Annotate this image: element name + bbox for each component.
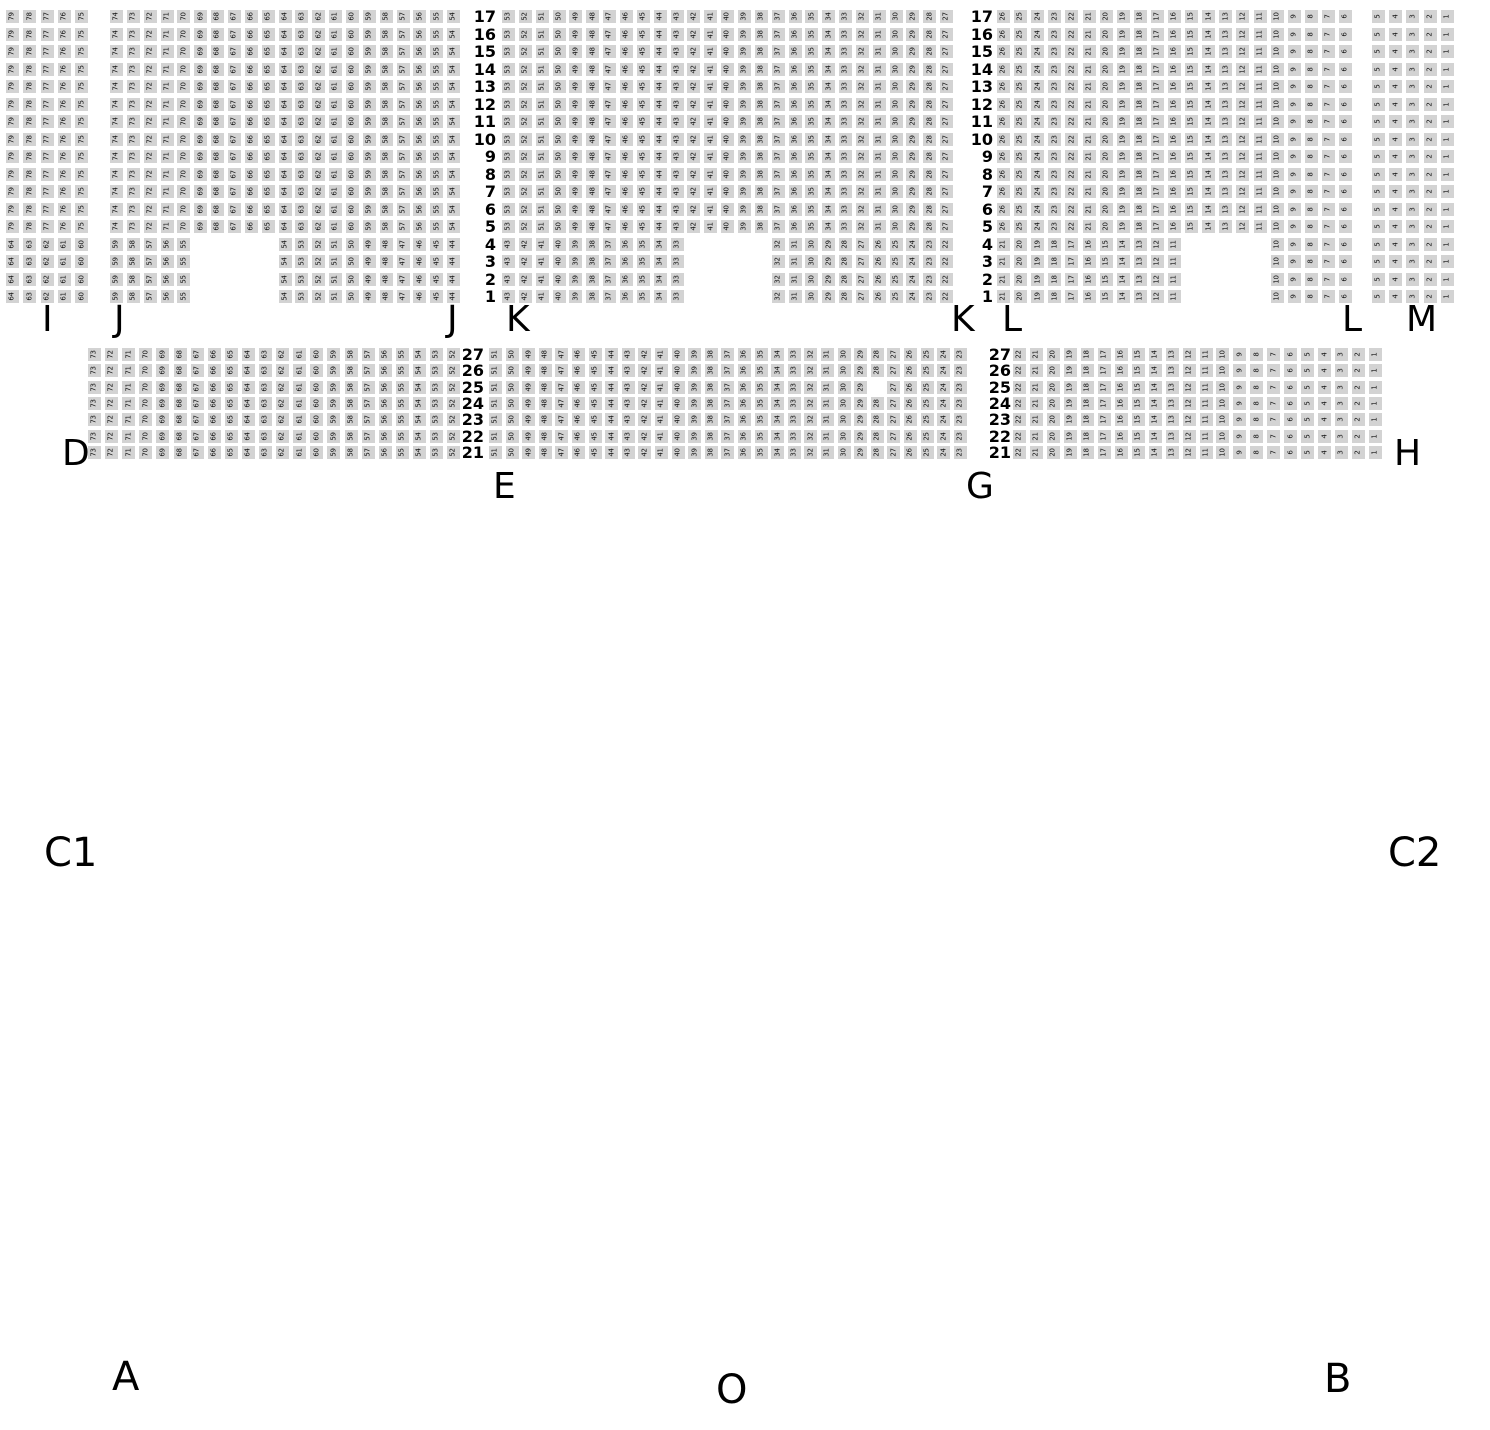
seat[interactable]: 17 (1151, 80, 1164, 93)
seat[interactable]: 1 (1441, 255, 1454, 268)
seat[interactable]: 78 (23, 133, 36, 146)
seat[interactable]: 57 (397, 220, 410, 233)
seat[interactable]: 67 (228, 168, 241, 181)
seat[interactable]: 65 (262, 133, 275, 146)
seat[interactable]: 8 (1305, 28, 1318, 41)
seat[interactable]: 65 (225, 413, 238, 426)
seat[interactable]: 31 (873, 133, 886, 146)
seat[interactable]: 22 (1065, 150, 1078, 163)
seat[interactable]: 43 (502, 255, 515, 268)
seat[interactable]: 34 (654, 273, 667, 286)
seat[interactable]: 24 (1031, 98, 1044, 111)
seat[interactable]: 58 (380, 80, 393, 93)
seat[interactable]: 32 (856, 203, 869, 216)
seat[interactable]: 29 (906, 220, 919, 233)
seat[interactable]: 38 (586, 273, 599, 286)
seat[interactable]: 33 (839, 10, 852, 23)
seat[interactable]: 75 (75, 185, 88, 198)
seat[interactable]: 22 (1065, 80, 1078, 93)
seat[interactable]: 15 (1185, 115, 1198, 128)
seat[interactable]: 50 (553, 220, 566, 233)
seat[interactable]: 44 (447, 255, 460, 268)
seat[interactable]: 56 (379, 348, 392, 361)
seat[interactable]: 72 (144, 115, 157, 128)
seat[interactable]: 17 (1151, 10, 1164, 23)
seat[interactable]: 55 (430, 45, 443, 58)
seat[interactable]: 1 (1441, 168, 1454, 181)
seat[interactable]: 46 (413, 255, 426, 268)
seat[interactable]: 56 (413, 203, 426, 216)
seat[interactable]: 49 (522, 348, 535, 361)
seat[interactable]: 26 (904, 446, 917, 459)
seat[interactable]: 60 (346, 133, 359, 146)
seat[interactable]: 45 (637, 150, 650, 163)
seat[interactable]: 30 (890, 203, 903, 216)
seat[interactable]: 25 (921, 446, 934, 459)
seat[interactable]: 24 (1031, 220, 1044, 233)
seat[interactable]: 14 (1202, 150, 1215, 163)
seat[interactable]: 11 (1168, 238, 1181, 251)
seat[interactable]: 51 (536, 133, 549, 146)
seat[interactable]: 4 (1389, 150, 1402, 163)
seat[interactable]: 53 (430, 364, 443, 377)
seat[interactable]: 2 (1352, 364, 1365, 377)
seat[interactable]: 13 (1219, 10, 1232, 23)
seat[interactable]: 30 (890, 98, 903, 111)
seat[interactable]: 62 (312, 28, 325, 41)
seat[interactable]: 42 (687, 133, 700, 146)
seat[interactable]: 27 (940, 220, 953, 233)
seat[interactable]: 51 (536, 203, 549, 216)
seat[interactable]: 58 (127, 290, 140, 303)
seat[interactable]: 79 (6, 150, 19, 163)
seat[interactable]: 1 (1441, 133, 1454, 146)
seat[interactable]: 60 (346, 150, 359, 163)
seat[interactable]: 61 (329, 10, 342, 23)
seat[interactable]: 12 (1183, 430, 1196, 443)
seat[interactable]: 24 (937, 348, 950, 361)
seat[interactable]: 70 (177, 168, 190, 181)
seat[interactable]: 21 (1030, 430, 1043, 443)
seat[interactable]: 18 (1134, 133, 1147, 146)
seat[interactable]: 62 (312, 220, 325, 233)
seat[interactable]: 17 (1098, 381, 1111, 394)
seat[interactable]: 70 (177, 185, 190, 198)
seat[interactable]: 16 (1168, 168, 1181, 181)
seat[interactable]: 4 (1318, 446, 1331, 459)
seat[interactable]: 40 (721, 115, 734, 128)
seat[interactable]: 15 (1185, 63, 1198, 76)
seat[interactable]: 13 (1134, 290, 1147, 303)
seat[interactable]: 41 (536, 255, 549, 268)
seat[interactable]: 31 (789, 290, 802, 303)
seat[interactable]: 29 (906, 63, 919, 76)
seat[interactable]: 35 (805, 203, 818, 216)
seat[interactable]: 46 (572, 381, 585, 394)
seat[interactable]: 60 (346, 168, 359, 181)
seat[interactable]: 8 (1305, 133, 1318, 146)
seat[interactable]: 23 (1048, 185, 1061, 198)
seat[interactable]: 7 (1322, 115, 1335, 128)
seat[interactable]: 4 (1389, 238, 1402, 251)
seat[interactable]: 42 (519, 273, 532, 286)
seat[interactable]: 27 (940, 150, 953, 163)
seat[interactable]: 16 (1083, 273, 1096, 286)
seat[interactable]: 65 (262, 115, 275, 128)
seat[interactable]: 69 (194, 63, 207, 76)
seat[interactable]: 1 (1369, 381, 1382, 394)
seat[interactable]: 9 (1288, 255, 1301, 268)
seat[interactable]: 10 (1216, 348, 1229, 361)
seat[interactable]: 11 (1254, 115, 1267, 128)
seat[interactable]: 33 (839, 45, 852, 58)
seat[interactable]: 22 (1065, 203, 1078, 216)
seat[interactable]: 36 (738, 446, 751, 459)
seat[interactable]: 6 (1284, 430, 1297, 443)
seat[interactable]: 67 (228, 63, 241, 76)
seat[interactable]: 29 (906, 45, 919, 58)
seat[interactable]: 17 (1151, 168, 1164, 181)
seat[interactable]: 60 (75, 238, 88, 251)
seat[interactable]: 7 (1267, 430, 1280, 443)
seat[interactable]: 50 (346, 255, 359, 268)
seat[interactable]: 7 (1322, 203, 1335, 216)
seat[interactable]: 70 (177, 63, 190, 76)
seat[interactable]: 3 (1406, 80, 1419, 93)
seat[interactable]: 39 (569, 238, 582, 251)
seat[interactable]: 11 (1254, 203, 1267, 216)
seat[interactable]: 42 (687, 80, 700, 93)
seat[interactable]: 54 (413, 430, 426, 443)
seat[interactable]: 2 (1424, 98, 1437, 111)
seat[interactable]: 71 (122, 446, 135, 459)
seat[interactable]: 37 (772, 203, 785, 216)
seat[interactable]: 62 (312, 115, 325, 128)
seat[interactable]: 12 (1183, 446, 1196, 459)
seat[interactable]: 44 (605, 413, 618, 426)
seat[interactable]: 47 (555, 381, 568, 394)
seat[interactable]: 54 (447, 168, 460, 181)
seat[interactable]: 9 (1288, 290, 1301, 303)
seat[interactable]: 18 (1048, 255, 1061, 268)
seat[interactable]: 28 (923, 63, 936, 76)
seat[interactable]: 21 (1083, 220, 1096, 233)
seat[interactable]: 43 (671, 28, 684, 41)
seat[interactable]: 69 (194, 28, 207, 41)
seat[interactable]: 15 (1185, 28, 1198, 41)
seat[interactable]: 19 (1117, 115, 1130, 128)
seat[interactable]: 55 (430, 133, 443, 146)
seat[interactable]: 68 (174, 397, 187, 410)
seat[interactable]: 27 (887, 348, 900, 361)
seat[interactable]: 6 (1339, 203, 1352, 216)
seat[interactable]: 22 (940, 255, 953, 268)
seat[interactable]: 34 (771, 348, 784, 361)
seat[interactable]: 72 (144, 150, 157, 163)
seat[interactable]: 71 (122, 430, 135, 443)
seat[interactable]: 62 (41, 238, 54, 251)
seat[interactable]: 60 (346, 10, 359, 23)
seat[interactable]: 30 (890, 10, 903, 23)
seat[interactable]: 54 (447, 28, 460, 41)
seat[interactable]: 35 (805, 98, 818, 111)
seat[interactable]: 50 (506, 381, 519, 394)
seat[interactable]: 4 (1318, 397, 1331, 410)
seat[interactable]: 29 (906, 98, 919, 111)
seat[interactable]: 59 (327, 446, 340, 459)
seat[interactable]: 63 (23, 273, 36, 286)
seat[interactable]: 70 (177, 115, 190, 128)
seat[interactable]: 6 (1284, 397, 1297, 410)
seat[interactable]: 22 (1013, 397, 1026, 410)
seat[interactable]: 1 (1369, 413, 1382, 426)
seat[interactable]: 75 (75, 133, 88, 146)
seat[interactable]: 57 (362, 381, 375, 394)
seat[interactable]: 69 (156, 413, 169, 426)
seat[interactable]: 20 (1100, 220, 1113, 233)
seat[interactable]: 55 (177, 238, 190, 251)
seat[interactable]: 46 (620, 185, 633, 198)
seat[interactable]: 8 (1305, 273, 1318, 286)
seat[interactable]: 72 (144, 220, 157, 233)
seat[interactable]: 54 (447, 150, 460, 163)
seat[interactable]: 70 (177, 80, 190, 93)
seat[interactable]: 33 (839, 98, 852, 111)
seat[interactable]: 56 (413, 220, 426, 233)
seat[interactable]: 45 (637, 115, 650, 128)
seat[interactable]: 6 (1339, 220, 1352, 233)
seat[interactable]: 20 (1047, 364, 1060, 377)
seat[interactable]: 73 (88, 364, 101, 377)
seat[interactable]: 65 (262, 220, 275, 233)
seat[interactable]: 4 (1389, 10, 1402, 23)
seat[interactable]: 70 (177, 28, 190, 41)
seat[interactable]: 69 (156, 364, 169, 377)
seat[interactable]: 15 (1132, 446, 1145, 459)
seat[interactable]: 40 (721, 98, 734, 111)
seat[interactable]: 66 (245, 28, 258, 41)
seat[interactable]: 50 (553, 133, 566, 146)
seat[interactable]: 67 (191, 381, 204, 394)
seat[interactable]: 44 (654, 150, 667, 163)
seat[interactable]: 49 (569, 133, 582, 146)
seat[interactable]: 67 (191, 413, 204, 426)
seat[interactable]: 20 (1047, 446, 1060, 459)
seat[interactable]: 7 (1322, 238, 1335, 251)
seat[interactable]: 63 (259, 446, 272, 459)
seat[interactable]: 42 (687, 220, 700, 233)
seat[interactable]: 29 (822, 238, 835, 251)
seat[interactable]: 73 (127, 98, 140, 111)
seat[interactable]: 19 (1117, 133, 1130, 146)
seat[interactable]: 42 (687, 185, 700, 198)
seat[interactable]: 48 (586, 168, 599, 181)
seat[interactable]: 15 (1185, 98, 1198, 111)
seat[interactable]: 3 (1335, 364, 1348, 377)
seat[interactable]: 26 (904, 397, 917, 410)
seat[interactable]: 40 (721, 133, 734, 146)
seat[interactable]: 56 (413, 98, 426, 111)
seat[interactable]: 74 (110, 28, 123, 41)
seat[interactable]: 17 (1065, 255, 1078, 268)
seat[interactable]: 31 (873, 45, 886, 58)
seat[interactable]: 36 (789, 203, 802, 216)
seat[interactable]: 73 (88, 381, 101, 394)
seat[interactable]: 31 (789, 273, 802, 286)
seat[interactable]: 1 (1441, 273, 1454, 286)
seat[interactable]: 65 (262, 63, 275, 76)
seat[interactable]: 53 (502, 28, 515, 41)
seat[interactable]: 15 (1100, 290, 1113, 303)
seat[interactable]: 13 (1134, 255, 1147, 268)
seat[interactable]: 28 (839, 238, 852, 251)
seat[interactable]: 67 (228, 80, 241, 93)
seat[interactable]: 30 (838, 430, 851, 443)
seat[interactable]: 66 (245, 185, 258, 198)
seat[interactable]: 10 (1271, 150, 1284, 163)
seat[interactable]: 59 (327, 381, 340, 394)
seat[interactable]: 64 (242, 381, 255, 394)
seat[interactable]: 20 (1047, 381, 1060, 394)
seat[interactable]: 63 (295, 150, 308, 163)
seat[interactable]: 29 (822, 290, 835, 303)
seat[interactable]: 70 (177, 220, 190, 233)
seat[interactable]: 6 (1339, 255, 1352, 268)
seat[interactable]: 38 (755, 28, 768, 41)
seat[interactable]: 38 (755, 115, 768, 128)
seat[interactable]: 55 (177, 290, 190, 303)
seat[interactable]: 10 (1271, 98, 1284, 111)
seat[interactable]: 47 (603, 220, 616, 233)
seat[interactable]: 29 (854, 381, 867, 394)
seat[interactable]: 41 (704, 168, 717, 181)
seat[interactable]: 75 (75, 45, 88, 58)
seat[interactable]: 34 (654, 290, 667, 303)
seat[interactable]: 27 (940, 115, 953, 128)
seat[interactable]: 26 (997, 115, 1010, 128)
seat[interactable]: 10 (1271, 133, 1284, 146)
seat[interactable]: 3 (1406, 185, 1419, 198)
seat[interactable]: 2 (1424, 10, 1437, 23)
seat[interactable]: 47 (555, 413, 568, 426)
seat[interactable]: 53 (295, 273, 308, 286)
seat[interactable]: 48 (586, 220, 599, 233)
seat[interactable]: 38 (586, 255, 599, 268)
seat[interactable]: 33 (839, 133, 852, 146)
seat[interactable]: 9 (1288, 63, 1301, 76)
seat[interactable]: 46 (620, 63, 633, 76)
seat[interactable]: 14 (1149, 413, 1162, 426)
seat[interactable]: 58 (127, 238, 140, 251)
seat[interactable]: 35 (805, 63, 818, 76)
seat[interactable]: 60 (346, 185, 359, 198)
seat[interactable]: 59 (110, 238, 123, 251)
seat[interactable]: 79 (6, 80, 19, 93)
seat[interactable]: 22 (1065, 28, 1078, 41)
seat[interactable]: 23 (954, 364, 967, 377)
seat[interactable]: 34 (822, 10, 835, 23)
seat[interactable]: 51 (489, 381, 502, 394)
seat[interactable]: 77 (41, 115, 54, 128)
seat[interactable]: 73 (88, 430, 101, 443)
seat[interactable]: 31 (873, 168, 886, 181)
seat[interactable]: 23 (954, 430, 967, 443)
seat[interactable]: 2 (1424, 220, 1437, 233)
seat[interactable]: 74 (110, 80, 123, 93)
seat[interactable]: 10 (1271, 45, 1284, 58)
seat[interactable]: 56 (413, 45, 426, 58)
seat[interactable]: 26 (873, 273, 886, 286)
seat[interactable]: 35 (805, 150, 818, 163)
seat[interactable]: 26 (997, 10, 1010, 23)
seat[interactable]: 62 (312, 98, 325, 111)
seat[interactable]: 34 (822, 133, 835, 146)
seat[interactable]: 50 (553, 115, 566, 128)
seat[interactable]: 72 (105, 364, 118, 377)
seat[interactable]: 16 (1168, 203, 1181, 216)
seat[interactable]: 32 (856, 168, 869, 181)
seat[interactable]: 40 (721, 185, 734, 198)
seat[interactable]: 66 (208, 446, 221, 459)
seat[interactable]: 1 (1369, 430, 1382, 443)
seat[interactable]: 66 (245, 115, 258, 128)
seat[interactable]: 39 (688, 446, 701, 459)
seat[interactable]: 65 (225, 430, 238, 443)
seat[interactable]: 34 (654, 255, 667, 268)
seat[interactable]: 16 (1168, 220, 1181, 233)
seat[interactable]: 62 (276, 397, 289, 410)
seat[interactable]: 60 (310, 430, 323, 443)
seat[interactable]: 51 (489, 364, 502, 377)
seat[interactable]: 72 (144, 168, 157, 181)
seat[interactable]: 48 (586, 28, 599, 41)
seat[interactable]: 36 (620, 290, 633, 303)
seat[interactable]: 73 (88, 413, 101, 426)
seat[interactable]: 43 (671, 185, 684, 198)
seat[interactable]: 29 (906, 133, 919, 146)
seat[interactable]: 8 (1250, 397, 1263, 410)
seat[interactable]: 57 (397, 203, 410, 216)
seat[interactable]: 32 (856, 63, 869, 76)
seat[interactable]: 77 (41, 80, 54, 93)
seat[interactable]: 22 (1013, 348, 1026, 361)
seat[interactable]: 62 (312, 10, 325, 23)
seat[interactable]: 13 (1134, 238, 1147, 251)
seat[interactable]: 76 (58, 203, 71, 216)
seat[interactable]: 42 (638, 381, 651, 394)
seat[interactable]: 33 (788, 364, 801, 377)
seat[interactable]: 39 (738, 220, 751, 233)
seat[interactable]: 16 (1083, 290, 1096, 303)
seat[interactable]: 29 (854, 364, 867, 377)
seat[interactable]: 65 (225, 397, 238, 410)
seat[interactable]: 18 (1048, 238, 1061, 251)
seat[interactable]: 19 (1031, 238, 1044, 251)
seat[interactable]: 39 (738, 63, 751, 76)
seat[interactable]: 12 (1183, 348, 1196, 361)
seat[interactable]: 6 (1339, 98, 1352, 111)
seat[interactable]: 49 (569, 168, 582, 181)
seat[interactable]: 21 (1083, 28, 1096, 41)
seat[interactable]: 30 (890, 115, 903, 128)
seat[interactable]: 37 (772, 28, 785, 41)
seat[interactable]: 49 (569, 115, 582, 128)
seat[interactable]: 15 (1185, 133, 1198, 146)
seat[interactable]: 9 (1288, 133, 1301, 146)
seat[interactable]: 58 (345, 364, 358, 377)
seat[interactable]: 52 (519, 10, 532, 23)
seat[interactable]: 58 (380, 220, 393, 233)
